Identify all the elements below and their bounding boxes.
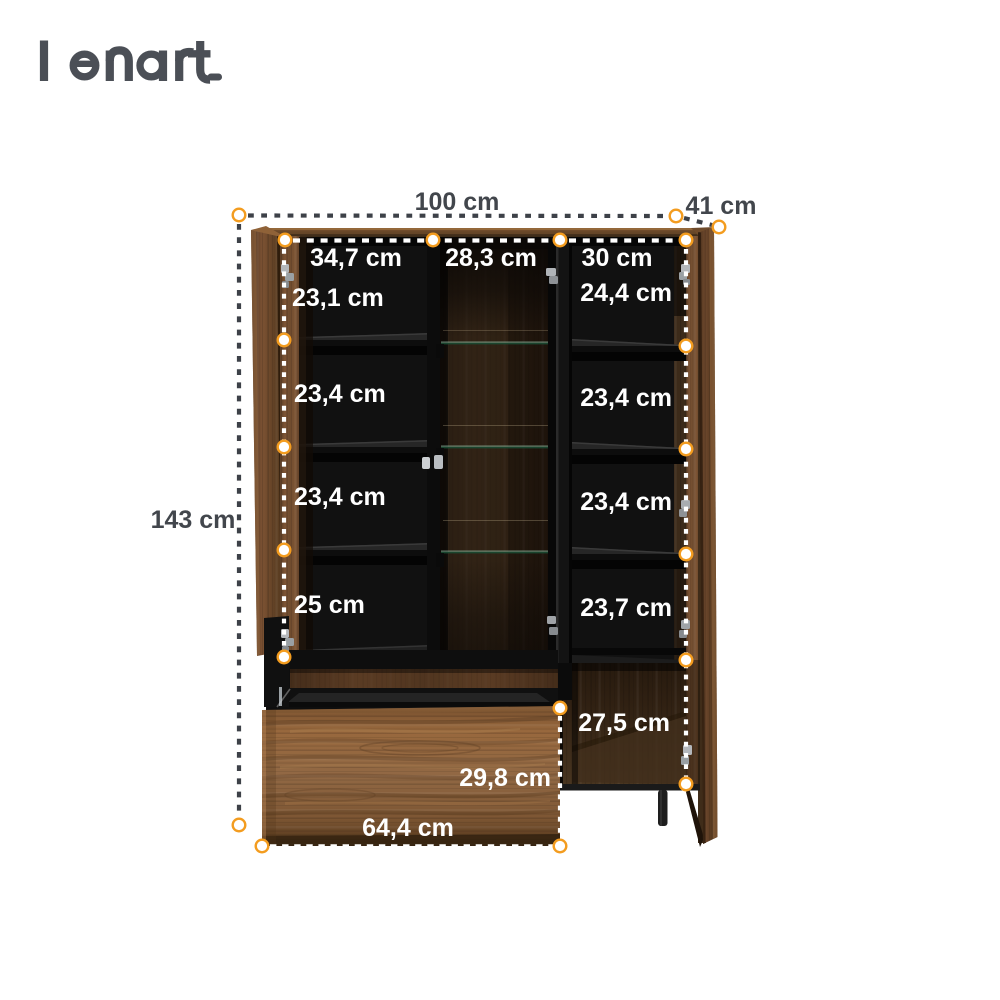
svg-text:29,8 cm: 29,8 cm <box>459 764 551 792</box>
svg-text:23,4 cm: 23,4 cm <box>294 380 386 408</box>
svg-text:27,5 cm: 27,5 cm <box>578 709 670 737</box>
svg-text:23,4 cm: 23,4 cm <box>580 384 672 412</box>
svg-text:41 cm: 41 cm <box>686 192 757 220</box>
svg-text:23,4 cm: 23,4 cm <box>294 483 386 511</box>
svg-text:24,4 cm: 24,4 cm <box>580 279 672 307</box>
svg-text:28,3 cm: 28,3 cm <box>445 244 537 272</box>
svg-text:23,4 cm: 23,4 cm <box>580 488 672 516</box>
svg-text:100 cm: 100 cm <box>415 188 500 216</box>
svg-text:143 cm: 143 cm <box>151 506 236 534</box>
svg-text:23,7 cm: 23,7 cm <box>580 594 672 622</box>
svg-text:64,4 cm: 64,4 cm <box>362 814 454 842</box>
svg-text:30 cm: 30 cm <box>582 244 653 272</box>
svg-text:34,7 cm: 34,7 cm <box>310 244 402 272</box>
svg-text:23,1 cm: 23,1 cm <box>292 284 384 312</box>
svg-text:25 cm: 25 cm <box>294 591 365 619</box>
